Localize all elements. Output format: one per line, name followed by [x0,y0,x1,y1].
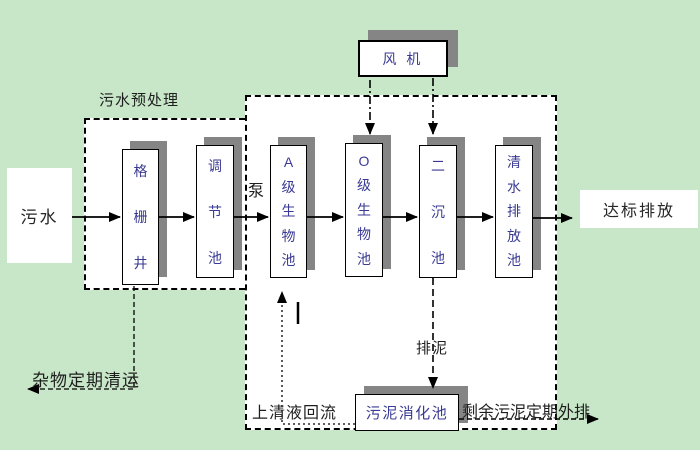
node-sludge-digestion-tank-label: 污泥消化池 [366,402,449,423]
node-grid-well-label: 格 栅 井 [134,148,148,286]
node-secondary-sedimentation-tank: 二 沉 池 [419,145,457,278]
node-secondary-sedimentation-tank-label: 二 沉 池 [431,143,445,281]
node-regulating-tank-label: 调 节 池 [208,143,222,281]
node-fan-blower-label: 风 机 [383,49,424,69]
node-regulating-tank: 调 节 池 [196,145,234,278]
node-a-level-bio-tank-label: A 级 生 物 池 [282,150,296,273]
node-fan-blower: 风 机 [358,40,448,77]
excess-sludge-label: 剩余污泥定期外排 [462,398,590,422]
node-grid-well: 格 栅 井 [122,149,159,285]
node-sludge-digestion-tank: 污泥消化池 [355,394,459,431]
node-standard-discharge-label: 达标排放 [603,197,675,221]
node-influent-sewage: 污水 [7,168,72,263]
node-o-level-bio-tank-label: O 级 生 物 池 [357,149,371,272]
debris-removal-label: 杂物定期清运 [32,366,140,391]
pump-label: 泵 [248,177,264,201]
node-o-level-bio-tank: O 级 生 物 池 [345,143,383,277]
node-clean-water-discharge-tank: 清 水 排 放 池 [495,145,533,278]
supernatant-return-label: 上清液回流 [252,399,337,423]
node-clean-water-discharge-tank-label: 清 水 排 放 池 [507,150,521,273]
sludge-discharge-label: 排泥 [416,337,448,358]
pretreatment-region-title: 污水预处理 [99,89,179,110]
node-standard-discharge: 达标排放 [580,190,698,228]
node-influent-sewage-label: 污水 [21,203,59,228]
node-a-level-bio-tank: A 级 生 物 池 [270,145,307,278]
process-flow-diagram: 污水 风 机 格 栅 井 调 节 池 A 级 生 物 池 O 级 生 物 池 二… [0,0,700,450]
